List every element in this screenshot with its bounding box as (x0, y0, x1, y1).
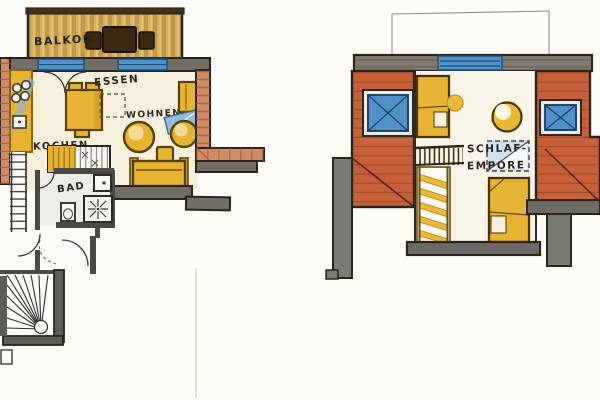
loft-bottom-wall (407, 242, 540, 255)
loft-bed-bottom (489, 178, 529, 242)
loft-stool (447, 95, 463, 111)
bath-wall-top (54, 168, 114, 174)
loft-ladder (417, 167, 450, 244)
bed-pillow (434, 112, 447, 127)
stove-burner (22, 81, 30, 89)
stove-burner (13, 84, 21, 92)
wall-stub (186, 197, 230, 211)
sideboard (179, 82, 197, 112)
stairwell-wall-right (54, 270, 64, 342)
toilet (61, 203, 75, 221)
wall-band-top (2, 58, 210, 71)
label-schlaf: SCHLAF- (467, 142, 528, 155)
wall-fragment (1, 350, 12, 364)
floor-plan-page: BALKON KOCHEN (0, 0, 600, 400)
bath-wall-left (35, 170, 40, 230)
loft-round-table (493, 103, 522, 132)
stairwell-wall-bottom (3, 336, 63, 345)
balcony-table (103, 27, 136, 52)
right-wall-post (547, 214, 571, 266)
balcony-chair-right (139, 32, 154, 49)
post-foot (326, 270, 338, 279)
label-empore: EMPORE (467, 159, 526, 172)
stool (157, 147, 173, 162)
sofa (130, 158, 188, 187)
stairwell-wall-left (0, 276, 7, 336)
eave-band (196, 161, 257, 172)
loft-railing (415, 146, 464, 165)
loft-bed-top (417, 76, 449, 137)
floor-plan-sketch: BALKON KOCHEN (0, 0, 600, 400)
left-brick-wall (0, 58, 10, 184)
wall-ladder (10, 152, 27, 232)
window-upper-top (438, 56, 502, 70)
stair-newel (35, 321, 48, 334)
bed-pillow (491, 216, 506, 233)
balcony-railing (26, 8, 184, 14)
stove-burner (12, 94, 20, 102)
roof-left (352, 71, 414, 207)
right-eave-band (527, 200, 600, 214)
skylight-right (540, 100, 581, 135)
stove-burner (21, 92, 29, 100)
top-exterior-wall-upper (354, 55, 592, 71)
skylight-left (363, 90, 413, 136)
hallway-floor (38, 226, 94, 272)
roof-right (536, 71, 600, 201)
balcony: BALKON (26, 8, 184, 59)
shower (84, 196, 112, 222)
